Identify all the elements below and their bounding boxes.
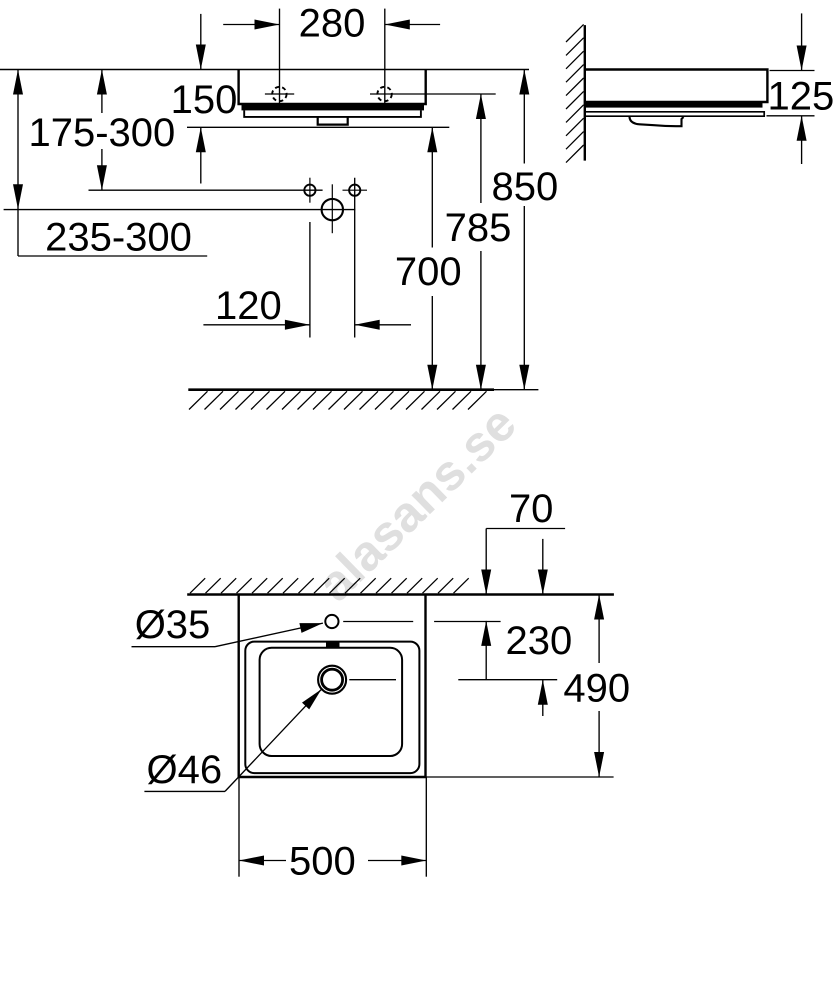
- svg-text:Ø35: Ø35: [135, 603, 211, 647]
- svg-text:Ø46: Ø46: [146, 748, 222, 792]
- svg-text:850: 850: [492, 165, 559, 209]
- svg-text:500: 500: [289, 840, 356, 884]
- svg-text:230: 230: [506, 619, 573, 663]
- svg-text:125: 125: [768, 75, 834, 119]
- svg-text:235-300: 235-300: [45, 216, 192, 260]
- svg-text:700: 700: [395, 250, 462, 294]
- svg-text:150: 150: [171, 78, 238, 122]
- svg-text:175-300: 175-300: [29, 111, 176, 155]
- svg-text:785: 785: [445, 206, 512, 250]
- svg-text:120: 120: [215, 284, 282, 328]
- svg-text:280: 280: [299, 2, 366, 46]
- svg-text:70: 70: [509, 487, 554, 531]
- svg-text:alasans.se: alasans.se: [307, 395, 527, 612]
- svg-text:490: 490: [563, 667, 630, 711]
